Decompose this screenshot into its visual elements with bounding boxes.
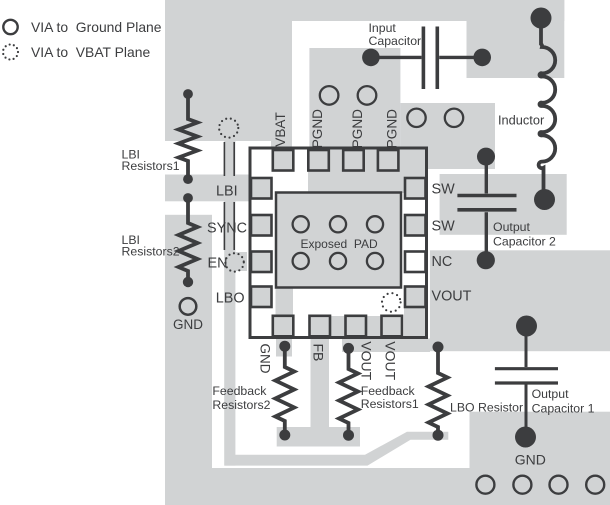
svg-text:VOUT: VOUT (432, 289, 472, 305)
svg-text:EN: EN (208, 255, 228, 271)
svg-text:FB: FB (311, 344, 327, 362)
svg-text:LBO: LBO (216, 290, 245, 306)
svg-text:VOUT: VOUT (359, 341, 375, 380)
svg-text:PGND: PGND (385, 109, 400, 148)
svg-text:Resistors2: Resistors2 (212, 398, 270, 412)
svg-text:LBI: LBI (216, 184, 238, 200)
svg-text:Capacitor 1: Capacitor 1 (532, 402, 595, 416)
svg-text:Exposed PAD: Exposed PAD (301, 237, 378, 251)
svg-text:SW: SW (432, 182, 456, 198)
svg-text:Feedback: Feedback (361, 384, 416, 398)
svg-text:PGND: PGND (350, 109, 365, 148)
svg-text:Input: Input (369, 21, 397, 35)
svg-text:Capacitor: Capacitor (369, 34, 422, 48)
svg-text:Resistors1: Resistors1 (361, 397, 419, 411)
svg-text:Feedback: Feedback (212, 384, 267, 398)
svg-text:PGND: PGND (310, 109, 325, 148)
svg-text:Capacitor 2: Capacitor 2 (493, 235, 556, 249)
svg-text:SW: SW (432, 219, 456, 235)
svg-text:VBAT: VBAT (273, 112, 288, 147)
svg-text:NC: NC (432, 254, 453, 270)
svg-text:Resistors2: Resistors2 (122, 245, 180, 259)
svg-text:Output: Output (532, 387, 569, 401)
svg-text:VIA to VBAT Plane: VIA to VBAT Plane (31, 44, 150, 60)
svg-text:GND: GND (173, 317, 203, 332)
svg-text:VOUT: VOUT (382, 341, 398, 380)
svg-text:LBO Resistor: LBO Resistor (450, 401, 523, 415)
svg-text:Resistors1: Resistors1 (122, 159, 180, 173)
svg-text:SYNC: SYNC (207, 221, 247, 237)
svg-text:GND: GND (257, 344, 272, 374)
svg-text:VIA to Ground Plane: VIA to Ground Plane (31, 19, 162, 35)
svg-text:GND: GND (515, 452, 546, 468)
svg-text:Inductor: Inductor (498, 113, 545, 128)
svg-text:Output: Output (493, 220, 530, 234)
